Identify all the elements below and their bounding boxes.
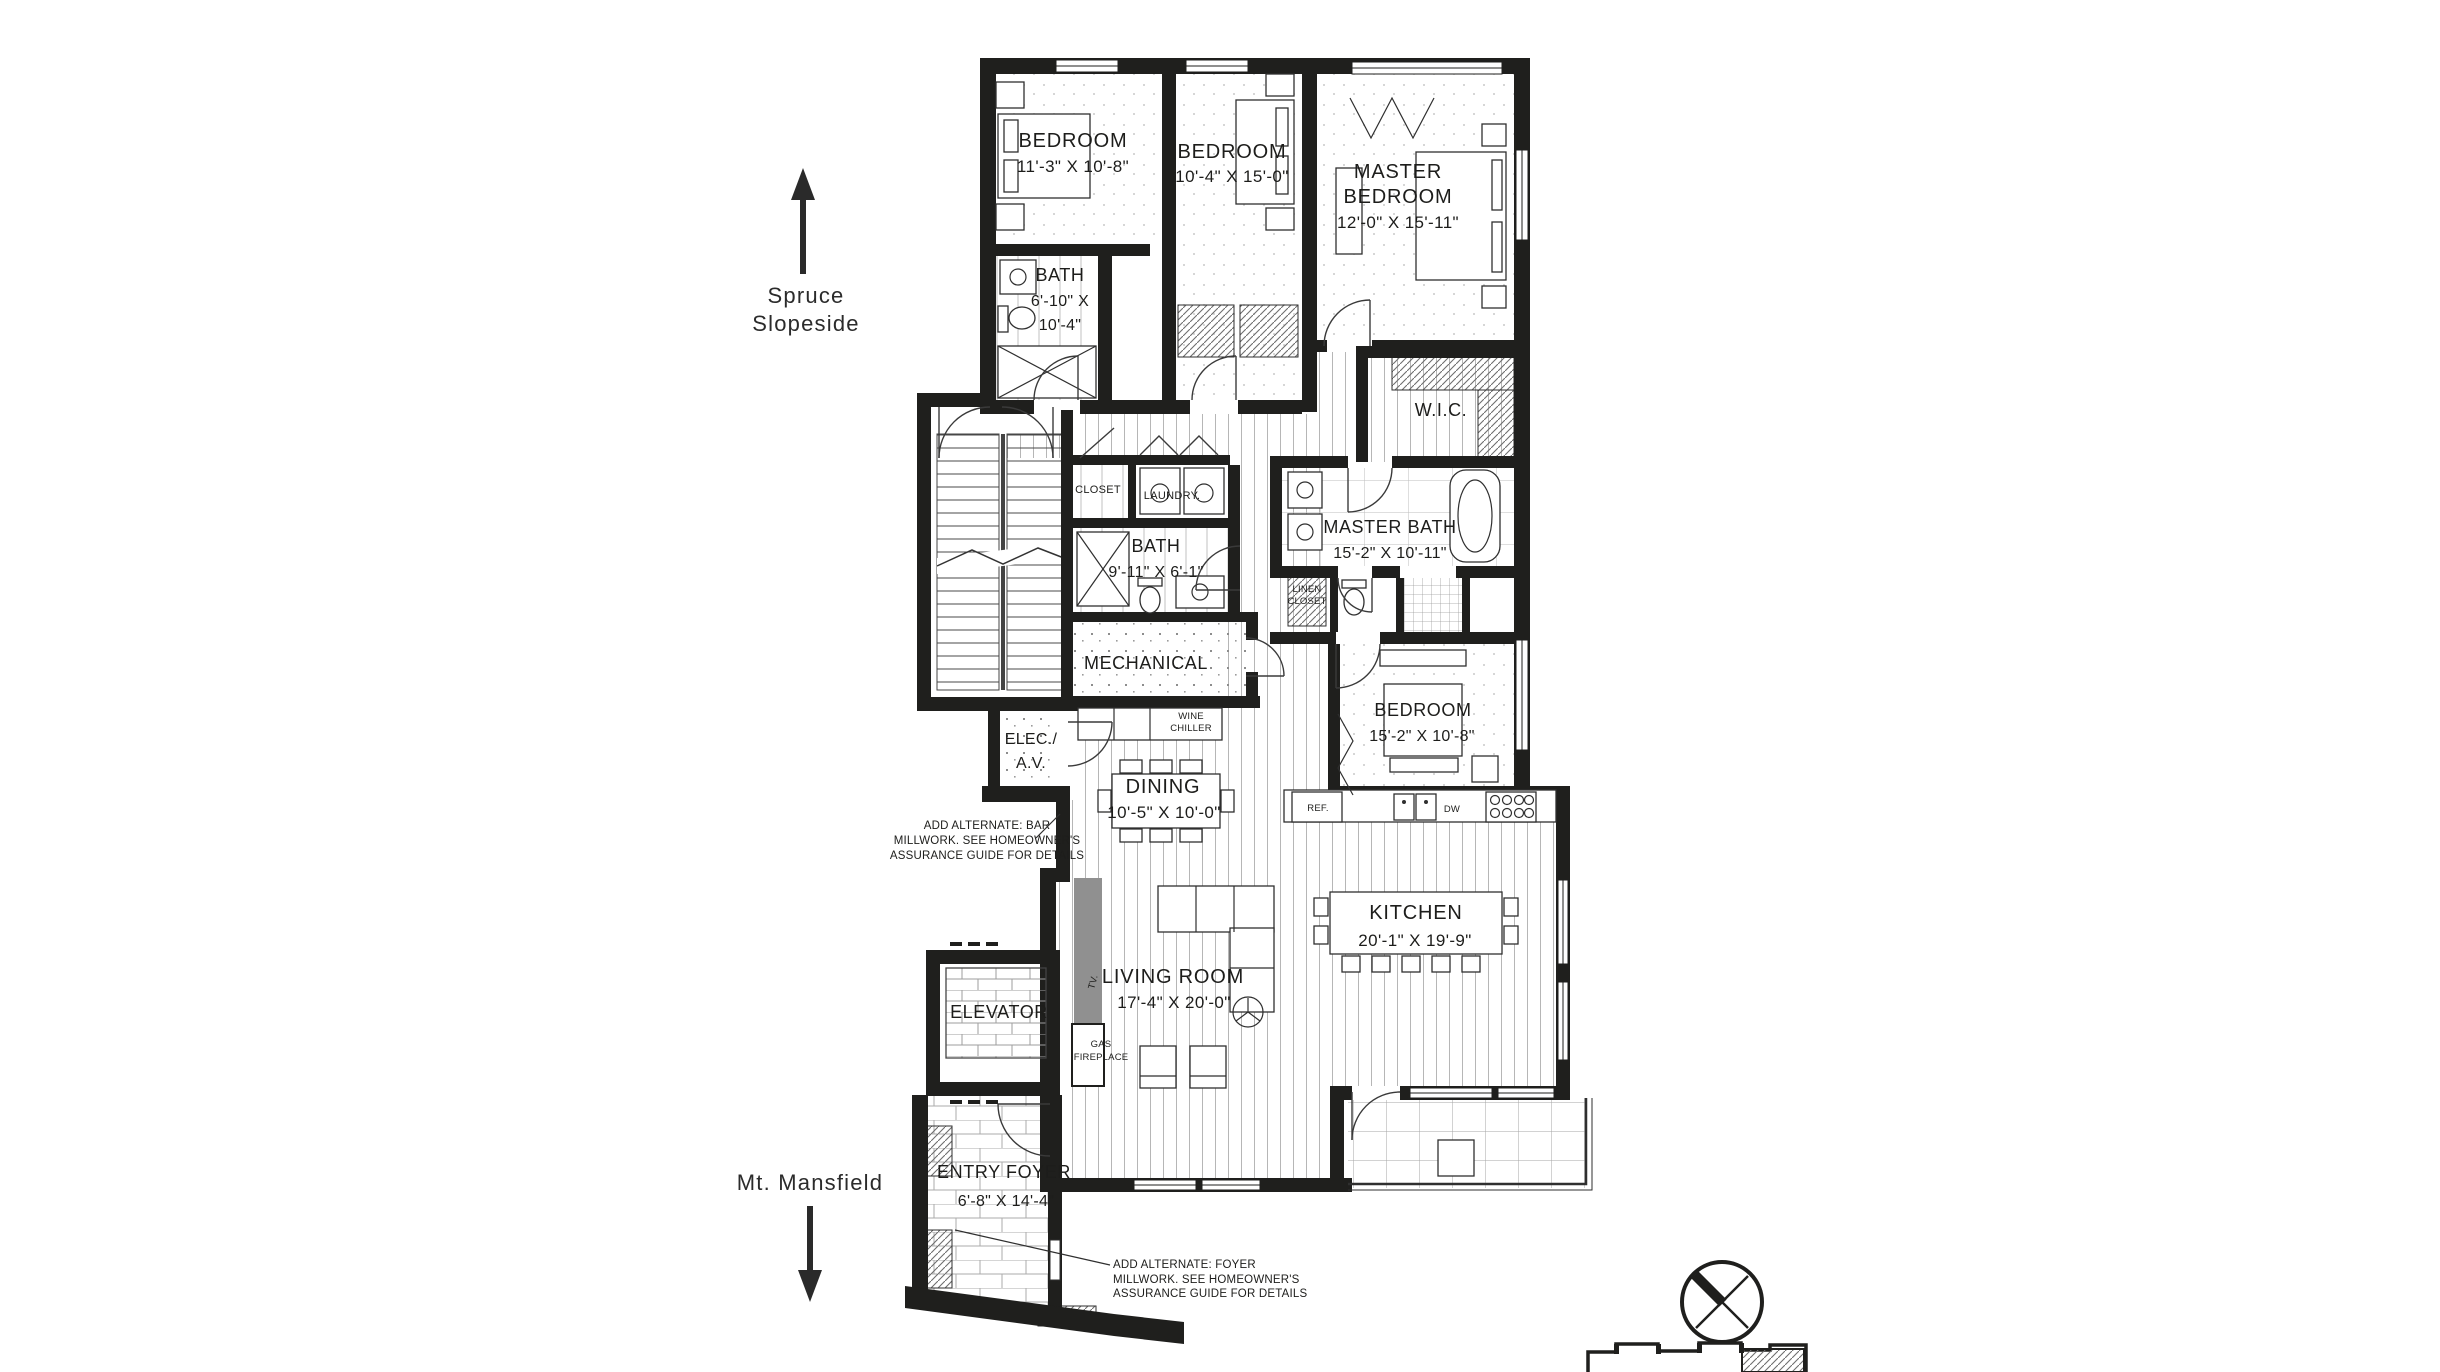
room-label-closet: CLOSET [1075, 484, 1121, 496]
room-label-linen-1: LINEN [1293, 584, 1322, 595]
direction-label-spruce: Spruce [768, 283, 845, 308]
room-label-dining: DINING [1126, 776, 1201, 798]
room-dims-master-bedroom: 12'-0" X 15'-11" [1337, 213, 1459, 232]
room-label-laundry: LAUNDRY. [1144, 490, 1200, 502]
note-foyer-line3: ASSURANCE GUIDE FOR DETAILS [1113, 1288, 1307, 1300]
room-label-living-room: LIVING ROOM [1102, 966, 1244, 988]
label-dw: DW [1444, 804, 1460, 815]
room-dims-master-bath: 15'-2" X 10'-11" [1333, 545, 1447, 562]
sofa [1158, 886, 1274, 932]
room-label-bath1: BATH [1035, 265, 1084, 285]
room-label-bedroom2: BEDROOM [1178, 141, 1287, 163]
room-dims-dining: 10'-5" X 10'-0" [1107, 803, 1220, 822]
direction-label-slopeside: Slopeside [752, 311, 859, 336]
room-label-linen-2: CLOSET [1287, 596, 1326, 607]
room-label-master-bedroom-1: MASTER [1354, 161, 1442, 183]
room-dims-bedroom2: 10'-4" X 15'-0" [1175, 167, 1288, 186]
direction-label-mt-mansfield: Mt. Mansfield [737, 1170, 883, 1195]
room-dims-entry-foyer: 6'-8" X 14'-4" [958, 1193, 1054, 1210]
note-bar-line1: ADD ALTERNATE: BAR [924, 820, 1051, 832]
room-dims-bath1-2: 10'-4" [1039, 317, 1082, 334]
room-label-bedroom4: BEDROOM [1374, 700, 1471, 720]
label-ref: REF. [1307, 803, 1328, 814]
room-dims-bath1-1: 6'-10" X [1031, 293, 1089, 310]
room-label-elevator: ELEVATOR [950, 1002, 1048, 1022]
room-label-wic: W.I.C. [1415, 400, 1468, 420]
room-label-kitchen: KITCHEN [1369, 902, 1462, 924]
bed [1384, 684, 1462, 756]
room-dims-living-room: 17'-4" X 20'-0" [1117, 993, 1230, 1012]
room-label-elec-2: A.V. [1016, 755, 1046, 772]
label-wine-chiller-1: WINE [1178, 711, 1204, 722]
stairwell [937, 410, 1069, 690]
room-label-bedroom1: BEDROOM [1019, 130, 1128, 152]
note-bar-line3: ASSURANCE GUIDE FOR DETAILS [890, 850, 1084, 862]
floor-plan-sheet: BEDROOM 11'-3" X 10'-8" BEDROOM 10'-4" X… [0, 0, 2440, 1372]
armchair [1140, 1046, 1176, 1088]
room-label-bath2: BATH [1131, 536, 1180, 556]
note-foyer-line2: MILLWORK. SEE HOMEOWNER'S [1113, 1274, 1300, 1286]
room-label-entry-foyer: ENTRY FOYER [937, 1162, 1071, 1182]
label-wine-chiller-2: CHILLER [1170, 723, 1212, 734]
room-label-master-bath: MASTER BATH [1323, 517, 1456, 537]
note-bar-line2: MILLWORK. SEE HOMEOWNER'S [894, 835, 1081, 847]
room-dims-bedroom4: 15'-2" X 10'-8" [1369, 728, 1475, 745]
label-gas-fireplace-2: FIREPLACE [1074, 1052, 1129, 1063]
label-gas-fireplace-1: GAS [1091, 1039, 1112, 1050]
building-key-plan-icon [1588, 1343, 1806, 1372]
room-dims-bath2: 9'-11" X 6'-1" [1108, 564, 1203, 581]
room-label-master-bedroom-2: BEDROOM [1344, 186, 1453, 208]
room-label-elec-1: ELEC./ [1005, 731, 1058, 748]
armchair [1190, 1046, 1226, 1088]
key-plan-unit-highlight [1742, 1349, 1804, 1372]
room-dims-kitchen: 20'-1" X 19'-9" [1358, 931, 1471, 950]
room-label-mechanical: MECHANICAL [1084, 653, 1208, 673]
note-foyer-line1: ADD ALTERNATE: FOYER [1113, 1259, 1256, 1271]
room-dims-bedroom1: 11'-3" X 10'-8" [1017, 157, 1129, 176]
